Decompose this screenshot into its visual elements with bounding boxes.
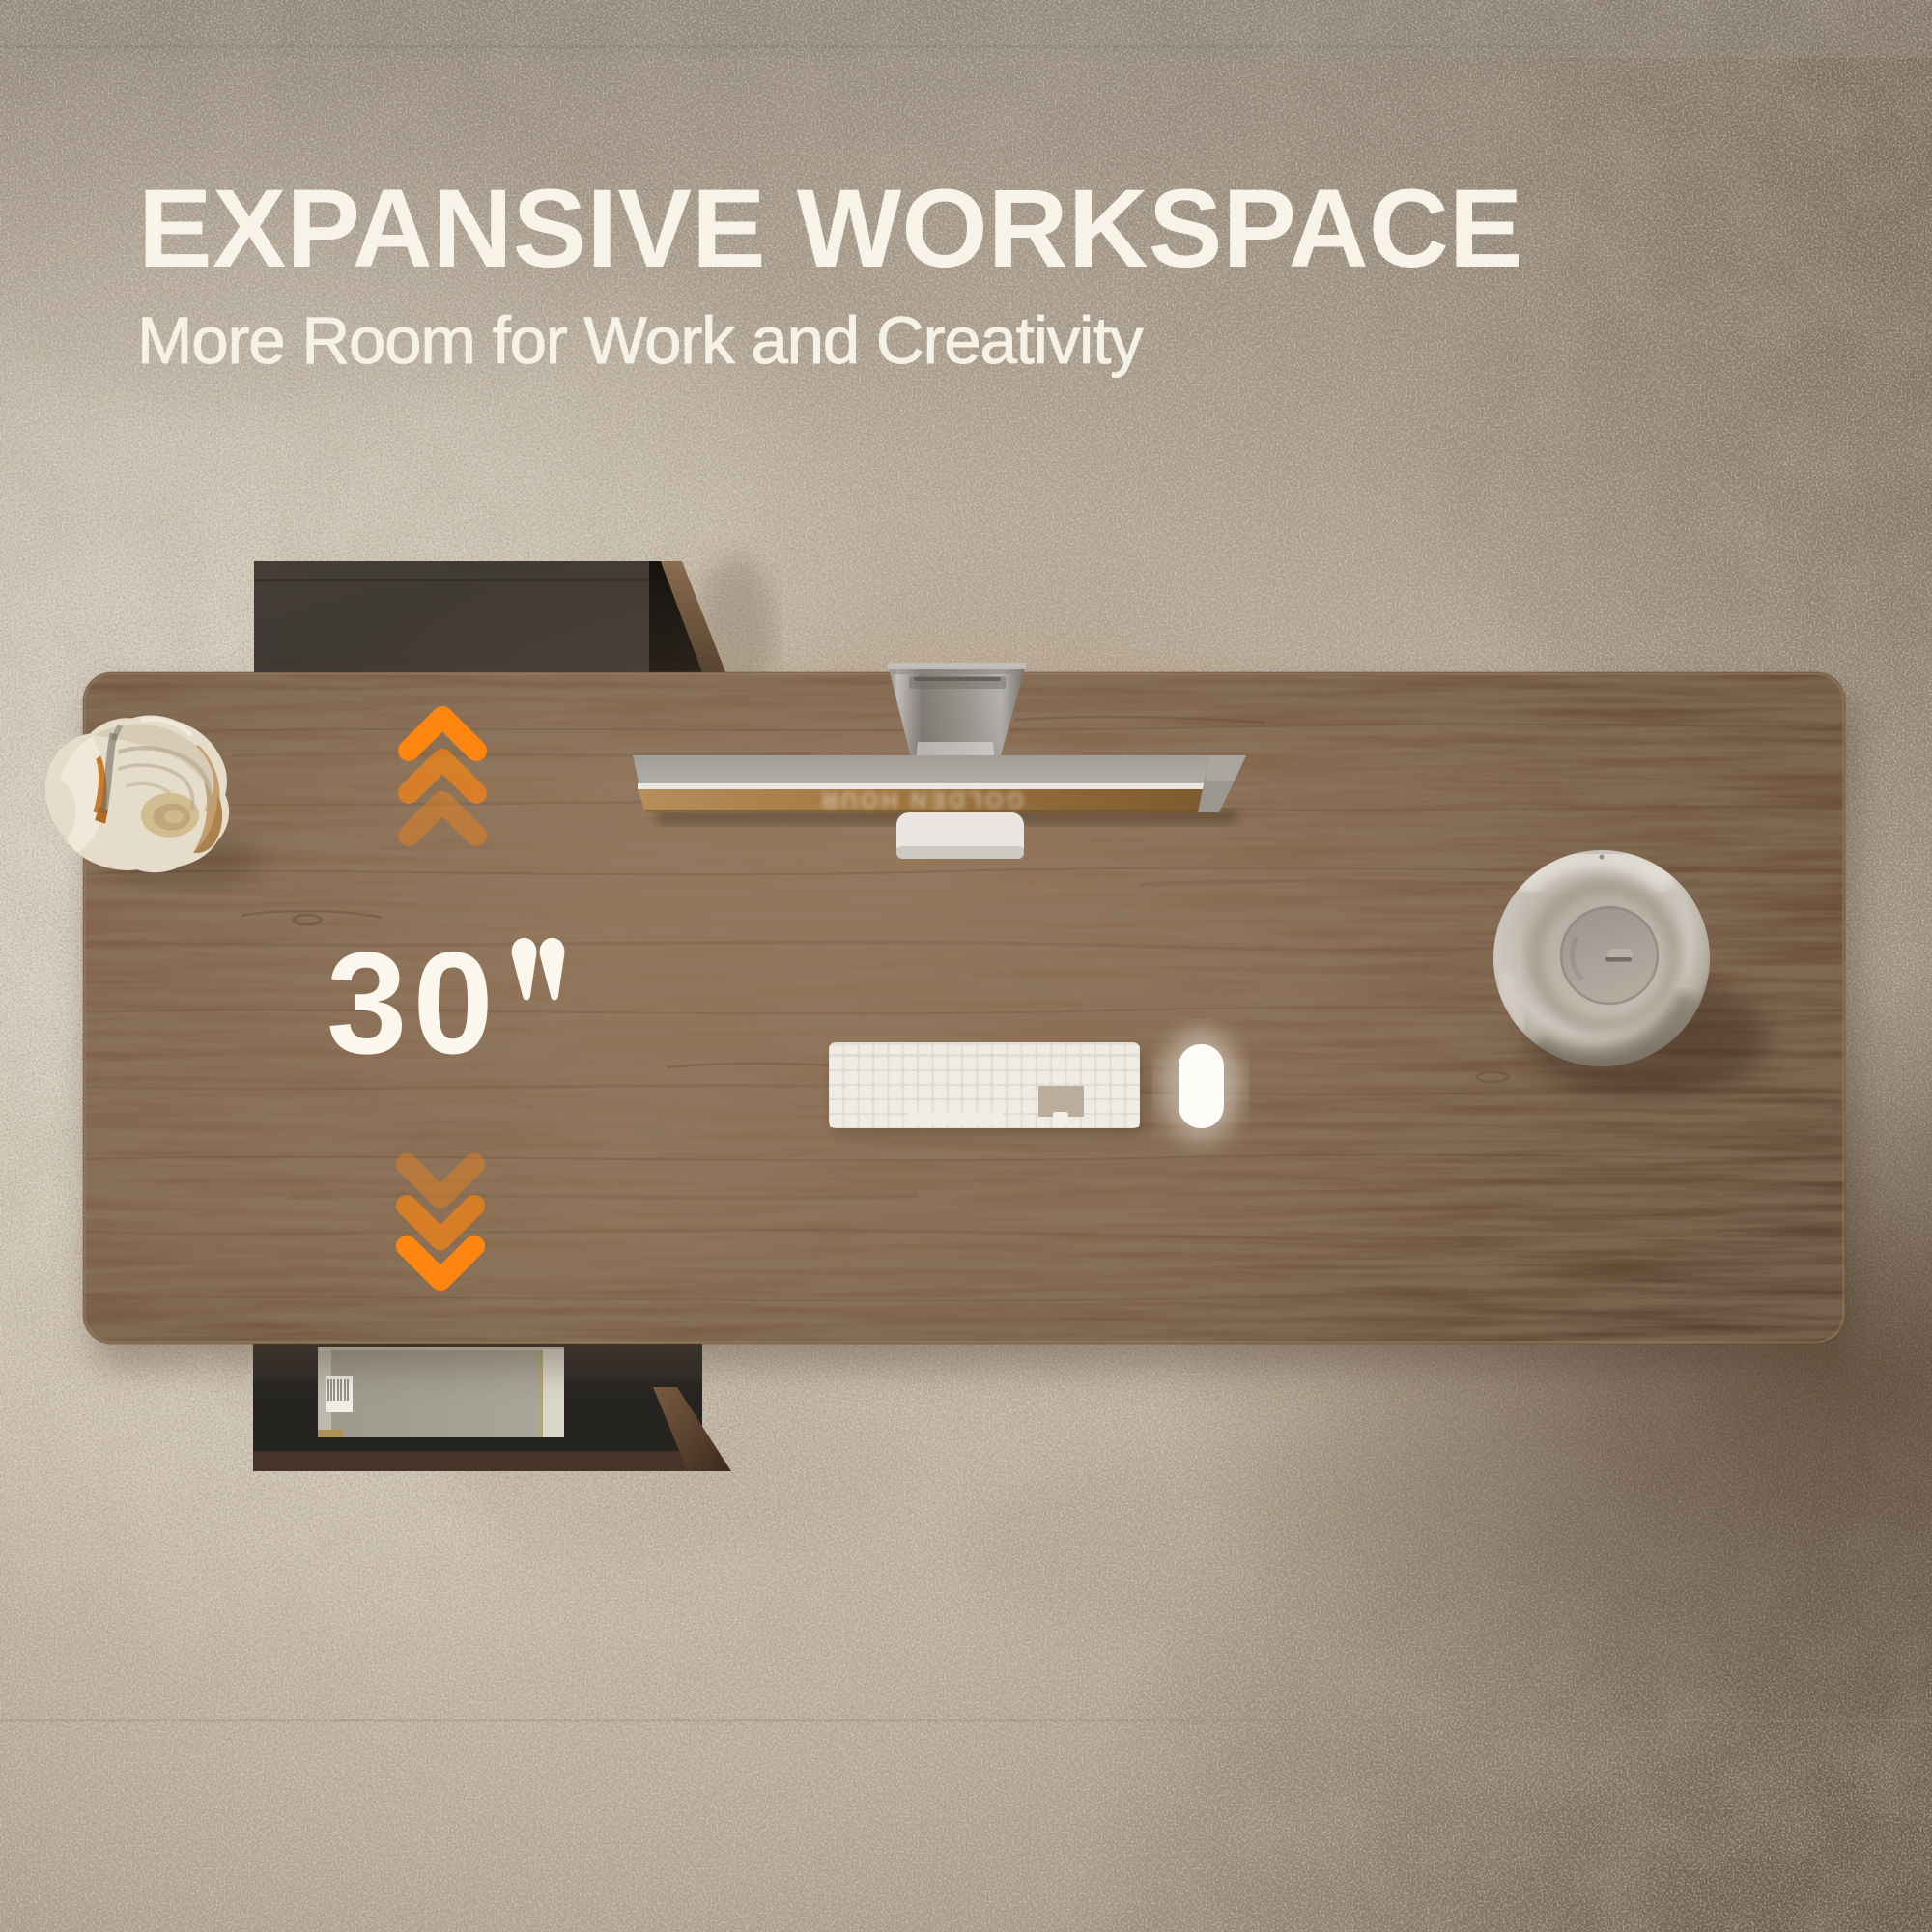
svg-text:More Room for Work and Creativ: More Room for Work and Creativity — [137, 303, 1144, 378]
svg-text:30: 30 — [327, 922, 499, 1084]
svg-text:GOLDEN HOUR: GOLDEN HOUR — [818, 786, 1024, 812]
svg-text:EXPANSIVE WORKSPACE: EXPANSIVE WORKSPACE — [138, 167, 1522, 291]
